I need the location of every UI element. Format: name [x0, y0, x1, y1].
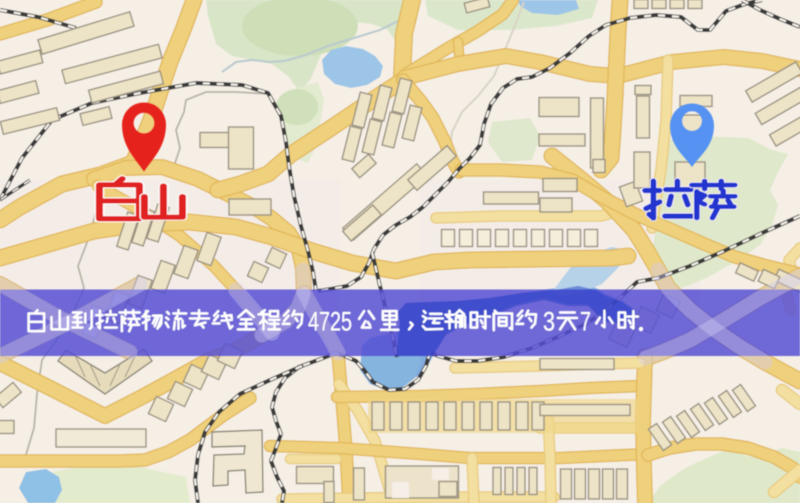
svg-text:4725: 4725 — [308, 307, 352, 337]
svg-text:3: 3 — [543, 307, 555, 337]
svg-text:7: 7 — [580, 307, 591, 337]
